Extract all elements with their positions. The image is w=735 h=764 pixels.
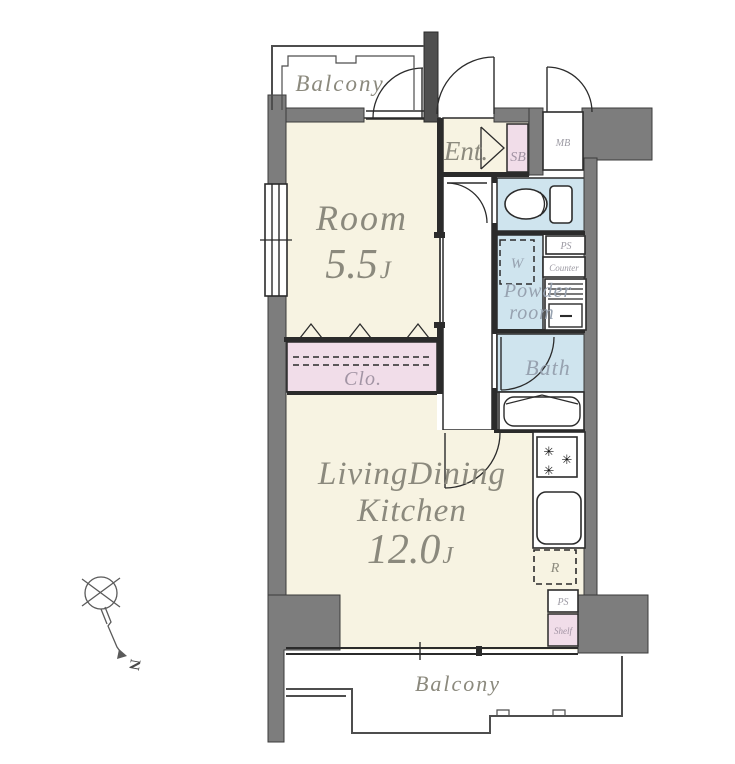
compass: N (82, 577, 143, 672)
wall-hall-wet-1 (492, 175, 497, 183)
wall-top-right-block (582, 108, 652, 160)
wall-room-hall-lower (437, 326, 443, 394)
ldk-label-line1: LivingDining (317, 456, 506, 492)
hallway-floor (443, 175, 492, 430)
refrigerator-label: R (550, 561, 560, 576)
meter-box-door-arc (547, 67, 592, 112)
balcony-top-label: Balcony (295, 71, 384, 96)
wall-toilet-powder (494, 231, 585, 235)
door-jamb-bottom (434, 322, 445, 328)
ldk-label-line2: Kitchen (356, 493, 467, 529)
front-door-arc (437, 57, 494, 114)
wall-closet-ldk (287, 391, 437, 395)
wall-left-lower (268, 295, 286, 595)
shelf-label: Shelf (554, 626, 573, 636)
door-jamb-top (434, 232, 445, 238)
wall-top-left (286, 108, 364, 122)
wall-hall-wet-2 (492, 223, 497, 334)
wall-left-upper (268, 95, 286, 185)
stove-burner-icon: ✳ (544, 445, 555, 460)
powder-room-label-line1: Powder (503, 280, 572, 302)
bathtub (499, 392, 584, 430)
balcony-bottom-label: Balcony (415, 671, 501, 696)
stove-burner-icon: ✳ (562, 453, 573, 468)
wall-bottom-left-block (268, 595, 340, 742)
pipe-space-lower-label: PS (556, 597, 568, 608)
wall-entrance-hall (443, 172, 529, 177)
compass-north-label: N (125, 658, 143, 672)
balcony-top: Balcony (272, 46, 424, 110)
kitchen-sink (537, 492, 581, 544)
counter-label: Counter (549, 263, 579, 273)
compass-arrowhead-icon (117, 649, 127, 659)
floor-plan-page: Balcony Balcony ✳ ✳ ✳ (0, 0, 735, 764)
kitchen-unit: ✳ ✳ ✳ (533, 432, 585, 548)
toilet-tank (550, 186, 572, 223)
compass-needle (105, 607, 122, 654)
shoe-box-label: SB (510, 150, 526, 165)
wall-room-closet (284, 337, 437, 342)
entrance-label: Ent. (443, 136, 488, 166)
powder-room-label-line2: room (509, 302, 554, 324)
balcony-bottom: Balcony (286, 656, 622, 733)
meter-box-label: MB (555, 138, 570, 149)
ldk-window-latch (476, 646, 482, 656)
wall-entrance-right (529, 108, 543, 175)
room-label: Room (315, 198, 408, 238)
wall-room-hall-upper (437, 118, 443, 238)
wall-bottom-right-block (578, 595, 648, 653)
floor-plan-canvas: Balcony Balcony ✳ ✳ ✳ (0, 0, 735, 764)
wall-hall-wet-3 (492, 388, 497, 430)
closet-label: Clo. (344, 368, 382, 390)
bath-label: Bath (525, 355, 571, 380)
stove-burner-icon: ✳ (544, 464, 555, 479)
pipe-space-upper-label: PS (559, 241, 571, 252)
wall-right-column (584, 158, 597, 598)
washer-label: W (511, 256, 525, 272)
wall-balcony-divider-bar (424, 32, 438, 122)
